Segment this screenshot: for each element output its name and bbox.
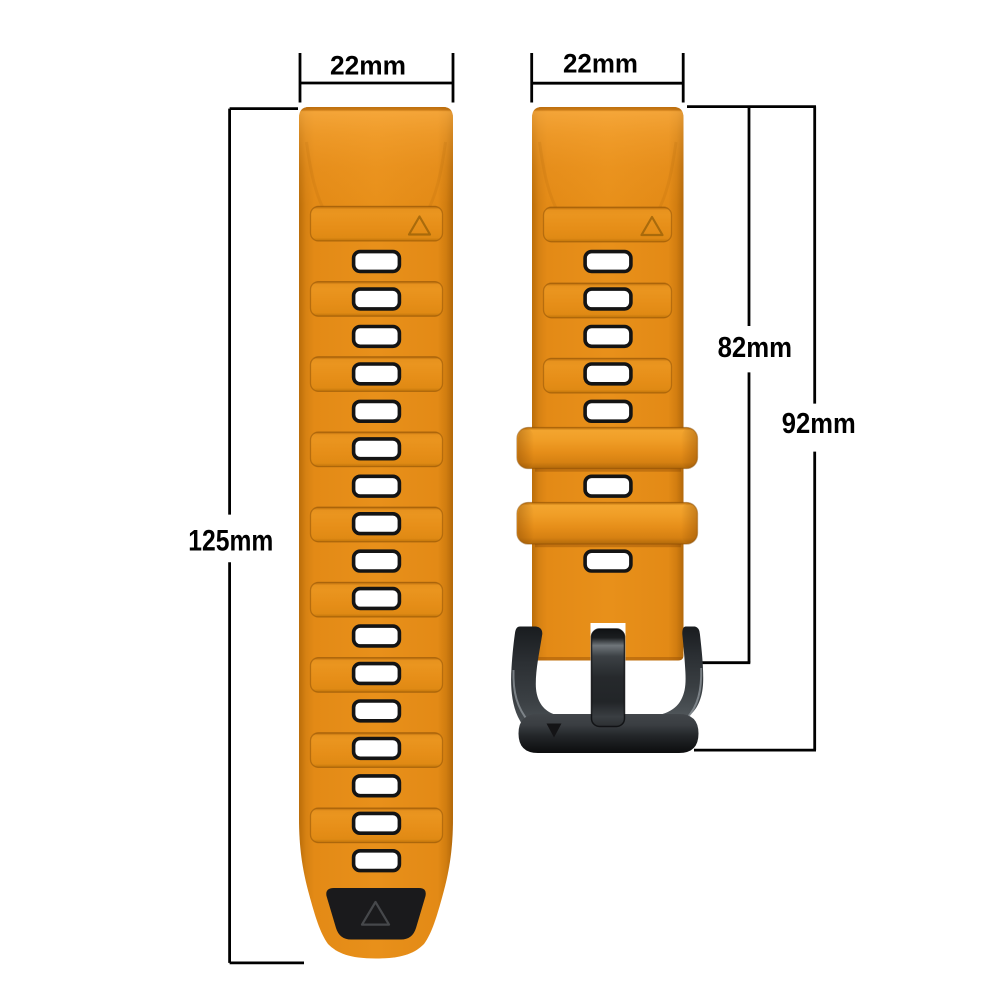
svg-text:22mm: 22mm [563,49,638,79]
svg-text:22mm: 22mm [330,51,406,81]
svg-text:82mm: 82mm [718,332,793,364]
svg-text:92mm: 92mm [782,408,856,440]
svg-text:125mm: 125mm [188,524,273,557]
